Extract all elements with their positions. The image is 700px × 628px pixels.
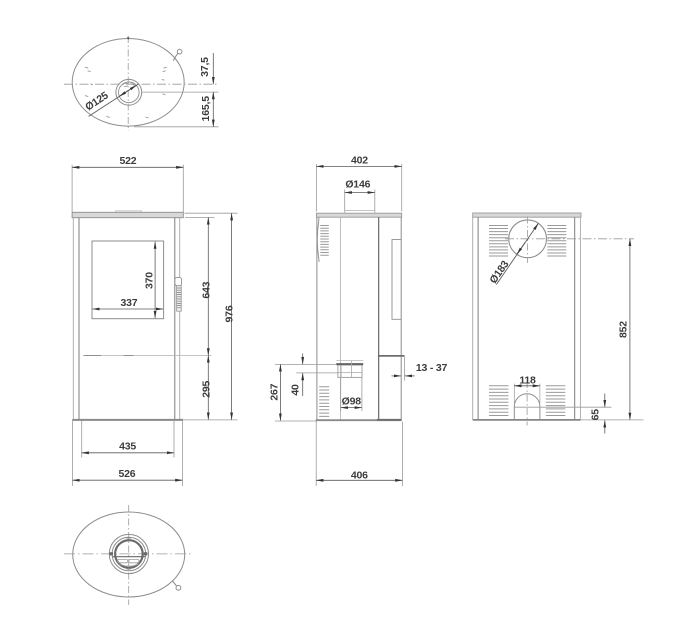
svg-text:295: 295 [201,380,213,397]
svg-text:402: 402 [351,155,368,167]
svg-text:37,5: 37,5 [199,57,211,77]
svg-text:65: 65 [590,409,602,421]
svg-text:165,5: 165,5 [200,96,212,122]
svg-text:Ø146: Ø146 [345,179,370,191]
svg-text:40: 40 [290,384,302,396]
svg-text:526: 526 [118,468,135,480]
svg-text:267: 267 [268,383,280,400]
svg-text:643: 643 [201,281,213,298]
svg-text:522: 522 [120,155,137,167]
svg-text:337: 337 [121,297,138,309]
svg-text:852: 852 [618,321,630,338]
svg-text:Ø98: Ø98 [342,395,362,407]
svg-text:976: 976 [224,305,236,322]
svg-text:118: 118 [519,375,536,387]
svg-text:435: 435 [119,441,136,453]
svg-text:406: 406 [351,469,368,481]
svg-text:370: 370 [143,272,155,289]
svg-text:13 - 37: 13 - 37 [416,362,448,374]
